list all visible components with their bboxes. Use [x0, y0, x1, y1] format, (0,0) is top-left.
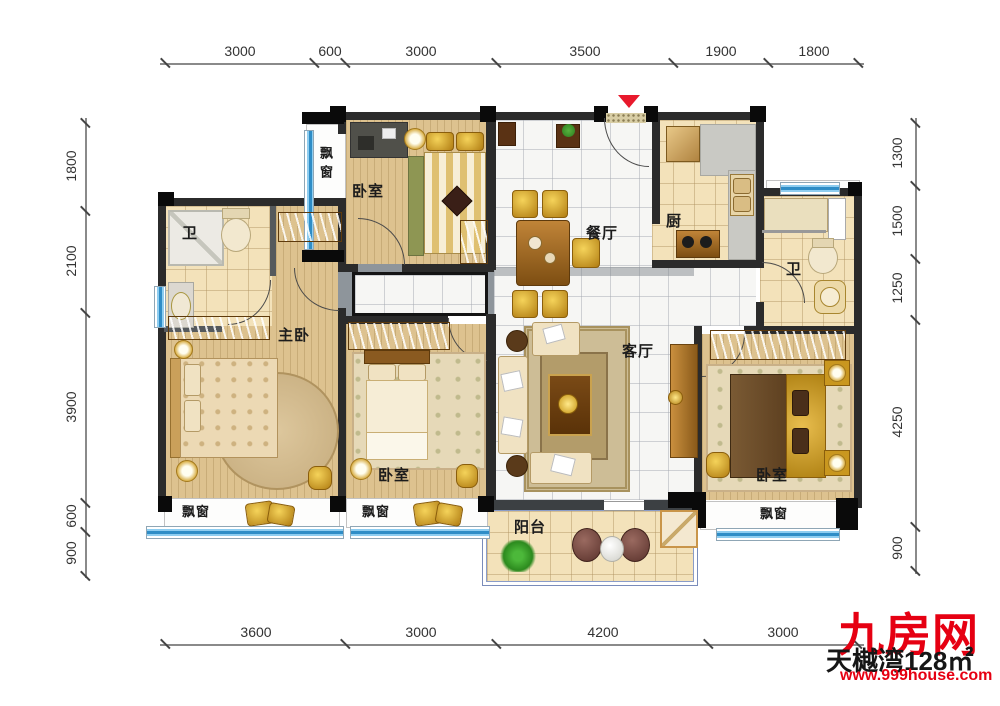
dim-value: 1900 — [691, 44, 751, 58]
label-dining-room: 餐厅 — [586, 226, 618, 241]
column-block — [158, 496, 172, 512]
label-bay-window-top-left: 飘窗 — [312, 146, 332, 184]
plant-icon — [500, 540, 536, 572]
pot-icon — [572, 528, 602, 562]
wall-segment — [270, 206, 276, 276]
wall-segment — [652, 260, 764, 268]
dim-value: 1800 — [784, 44, 844, 58]
dim-value: 1800 — [64, 140, 78, 192]
wall-segment — [402, 264, 494, 272]
label-kitchen: 厨 — [666, 214, 682, 229]
balcony-door-gap — [604, 501, 644, 511]
wall-segment — [338, 112, 494, 120]
label-bedroom-mid: 卧室 — [378, 468, 410, 483]
column-block — [302, 112, 344, 124]
label-living-room: 客厅 — [622, 344, 654, 359]
hallway-left-inset — [352, 272, 488, 316]
dim-value: 4250 — [890, 396, 904, 448]
dim-value: 1300 — [890, 127, 904, 179]
dim-value: 3600 — [226, 625, 286, 639]
column-block — [330, 496, 346, 512]
label-bay-window-bottom-mid: 飘窗 — [362, 505, 390, 518]
entry-arrow — [618, 95, 640, 108]
label-bedroom-right: 卧室 — [756, 468, 788, 483]
label-balcony: 阳台 — [514, 520, 546, 535]
dim-value: 2100 — [64, 235, 78, 287]
dim-value: 3500 — [555, 44, 615, 58]
label-bath-left: 卫 — [182, 226, 198, 241]
floor-plan-canvas: 飘窗 卧室 餐厅 厨 卫 卫 主卧 卧室 客厅 卧室 阳台 飘窗 飘窗 飘窗 3… — [0, 0, 1000, 706]
watermark-url: www.999house.com — [840, 668, 992, 684]
window-bay-bottom-left — [146, 526, 344, 539]
column-block — [302, 250, 344, 262]
wall-segment — [652, 112, 660, 224]
label-bath-right: 卫 — [786, 262, 802, 277]
column-block — [478, 496, 494, 512]
dim-value: 3900 — [64, 381, 78, 433]
dim-value: 1500 — [890, 195, 904, 247]
column-block — [158, 192, 174, 206]
column-block — [836, 498, 858, 530]
dim-value: 1250 — [890, 262, 904, 314]
label-bedroom-top: 卧室 — [352, 184, 384, 199]
dim-value: 600 — [300, 44, 360, 58]
wall-segment — [158, 198, 346, 206]
dim-value: 3000 — [753, 625, 813, 639]
window-bay-bottom-mid — [350, 526, 490, 539]
pot-icon — [620, 528, 650, 562]
column-block — [848, 182, 862, 196]
toilet-icon — [221, 218, 251, 252]
dim-line — [85, 118, 87, 578]
wall-segment — [338, 308, 346, 508]
label-bay-window-bottom-right: 飘窗 — [760, 507, 788, 520]
label-master-bedroom: 主卧 — [278, 328, 310, 343]
wall-segment — [756, 112, 764, 194]
washing-machine-icon — [660, 510, 698, 548]
window-bay-bottom-right — [716, 528, 840, 541]
dim-line — [160, 644, 864, 646]
label-bay-window-bottom-left: 飘窗 — [182, 505, 210, 518]
wall-segment — [756, 302, 764, 332]
column-block — [750, 106, 766, 122]
dim-value: 3000 — [391, 625, 451, 639]
wall-segment — [854, 188, 862, 508]
wall-segment — [158, 324, 166, 504]
dim-value: 4200 — [573, 625, 633, 639]
dim-value: 3000 — [210, 44, 270, 58]
wall-segment — [486, 500, 604, 510]
dim-value: 3000 — [391, 44, 451, 58]
dim-value: 900 — [64, 527, 78, 579]
wall-segment — [486, 314, 496, 508]
window-bath-left — [154, 286, 166, 328]
dim-value: 900 — [890, 522, 904, 574]
wall-segment — [646, 112, 764, 120]
wall-segment — [490, 112, 608, 120]
window-bath-right-top — [780, 182, 840, 195]
column-block — [480, 106, 496, 122]
wall-segment — [158, 198, 166, 286]
dim-line — [160, 63, 864, 65]
